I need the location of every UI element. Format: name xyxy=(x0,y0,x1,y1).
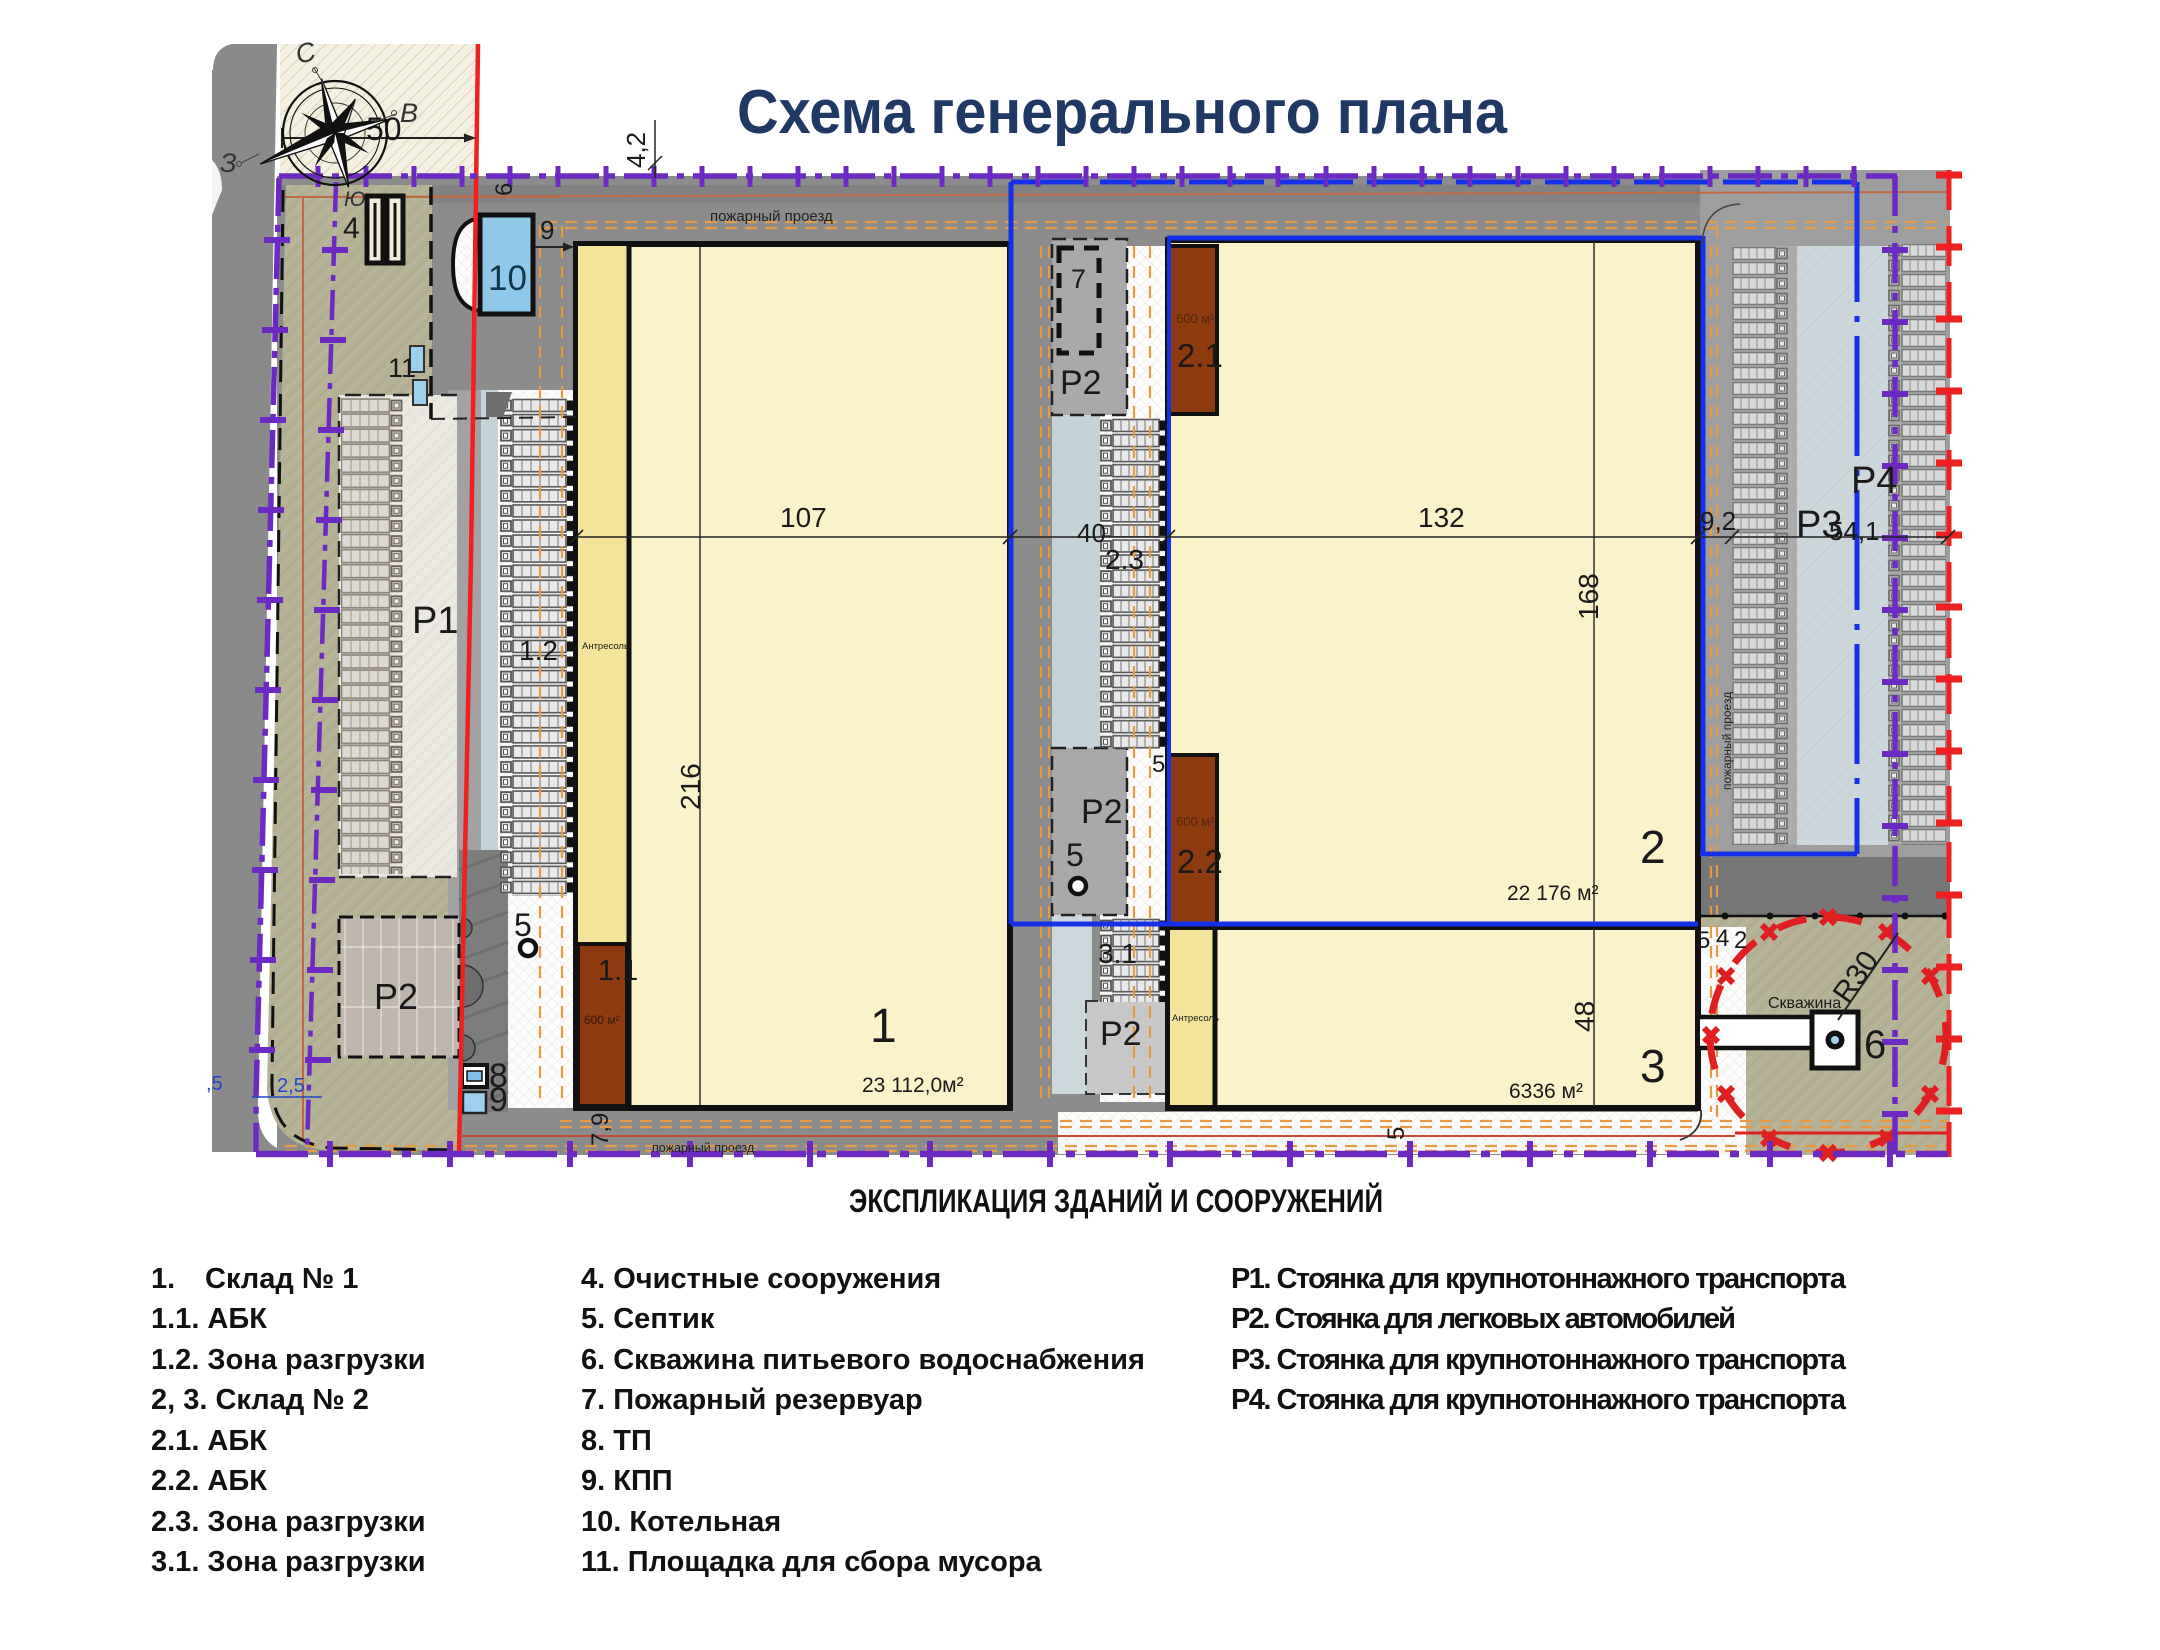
svg-text:1: 1 xyxy=(870,1000,897,1053)
svg-text:5: 5 xyxy=(1152,751,1165,778)
svg-text:,5: ,5 xyxy=(206,1073,223,1095)
svg-text:1.1. АБК: 1.1. АБК xyxy=(151,1303,267,1335)
svg-text:Ю: Ю xyxy=(344,188,365,211)
svg-text:2.2. АБК: 2.2. АБК xyxy=(151,1465,267,1497)
svg-text:P2: P2 xyxy=(1100,1015,1142,1053)
svg-text:168: 168 xyxy=(1573,573,1604,620)
svg-text:11: 11 xyxy=(388,353,416,383)
svg-text:пожарный проезд: пожарный проезд xyxy=(1720,692,1734,790)
svg-text:P2: P2 xyxy=(374,976,418,1017)
svg-text:9: 9 xyxy=(489,1081,508,1119)
svg-text:2.3: 2.3 xyxy=(1105,544,1144,575)
svg-text:P1: P1 xyxy=(412,600,458,642)
svg-text:7. Пожарный резервуар: 7. Пожарный резервуар xyxy=(581,1384,923,1416)
svg-text:48: 48 xyxy=(1569,1001,1600,1032)
svg-text:Р1. Стоянка для крупнотоннажно: Р1. Стоянка для крупнотоннажного транспо… xyxy=(1231,1263,1847,1295)
svg-text:11. Площадка для сбора мусора: 11. Площадка для сбора мусора xyxy=(581,1546,1043,1578)
svg-text:Антресоль: Антресоль xyxy=(582,641,629,652)
svg-text:пожарный проезд: пожарный проезд xyxy=(710,208,833,225)
svg-text:P4: P4 xyxy=(1851,460,1897,502)
svg-text:2, 3. Склад № 2: 2, 3. Склад № 2 xyxy=(151,1384,369,1416)
svg-text:1.2. Зона разгрузки: 1.2. Зона разгрузки xyxy=(151,1344,426,1376)
svg-text:3.1: 3.1 xyxy=(1098,938,1137,969)
svg-text:9: 9 xyxy=(540,215,554,245)
svg-text:9,2: 9,2 xyxy=(1700,506,1736,536)
svg-text:P2: P2 xyxy=(1060,364,1102,402)
svg-text:6: 6 xyxy=(491,183,518,196)
svg-text:3: 3 xyxy=(1640,1040,1666,1092)
svg-text:600 м²: 600 м² xyxy=(584,1013,620,1027)
svg-text:2.2: 2.2 xyxy=(1177,843,1223,880)
svg-text:40: 40 xyxy=(1077,518,1106,548)
svg-text:2.1. АБК: 2.1. АБК xyxy=(151,1425,267,1457)
svg-text:Р4. Стоянка для крупнотоннажно: Р4. Стоянка для крупнотоннажного транспо… xyxy=(1231,1384,1847,1416)
svg-text:5. Септик: 5. Септик xyxy=(581,1303,715,1335)
svg-text:1.1: 1.1 xyxy=(598,955,638,987)
svg-text:107: 107 xyxy=(780,502,827,533)
svg-text:10. Котельная: 10. Котельная xyxy=(581,1506,781,1538)
svg-text:2: 2 xyxy=(1734,927,1747,954)
svg-text:Склад № 1: Склад № 1 xyxy=(205,1263,358,1295)
svg-text:22 176 м²: 22 176 м² xyxy=(1507,882,1599,905)
svg-text:2.1: 2.1 xyxy=(1177,337,1223,374)
svg-text:5: 5 xyxy=(514,907,532,943)
svg-text:пожарный проезд: пожарный проезд xyxy=(652,1141,755,1155)
svg-text:Скважина: Скважина xyxy=(1768,995,1841,1012)
svg-text:600 м²: 600 м² xyxy=(1176,311,1215,326)
svg-text:600 м²: 600 м² xyxy=(1176,814,1215,829)
svg-text:P3: P3 xyxy=(1796,504,1842,546)
svg-text:2.3. Зона разгрузки: 2.3. Зона разгрузки xyxy=(151,1506,426,1538)
svg-text:7: 7 xyxy=(1071,264,1086,294)
svg-text:4: 4 xyxy=(343,212,360,245)
svg-text:8. ТП: 8. ТП xyxy=(581,1425,652,1457)
svg-text:6336 м²: 6336 м² xyxy=(1509,1080,1583,1103)
svg-text:Р3. Стоянка для крупнотоннажно: Р3. Стоянка для крупнотоннажного транспо… xyxy=(1231,1344,1847,1376)
svg-text:4: 4 xyxy=(1716,925,1729,952)
svg-text:ЭКСПЛИКАЦИЯ ЗДАНИЙ И СООРУЖЕНИ: ЭКСПЛИКАЦИЯ ЗДАНИЙ И СООРУЖЕНИЙ xyxy=(849,1183,1383,1219)
svg-text:216: 216 xyxy=(675,763,706,810)
svg-text:7,9: 7,9 xyxy=(587,1113,614,1146)
svg-text:5: 5 xyxy=(1066,837,1084,873)
svg-text:4. Очистные сооружения: 4. Очистные сооружения xyxy=(581,1263,941,1295)
svg-text:9. КПП: 9. КПП xyxy=(581,1465,673,1497)
svg-text:1.: 1. xyxy=(151,1263,175,1295)
svg-text:2: 2 xyxy=(1640,821,1666,873)
svg-text:23 112,0м²: 23 112,0м² xyxy=(862,1074,964,1097)
svg-text:В: В xyxy=(400,98,418,128)
svg-text:Схема генерального плана: Схема генерального плана xyxy=(737,78,1507,147)
svg-text:6. Скважина питьевого водоснаб: 6. Скважина питьевого водоснабжения xyxy=(581,1344,1145,1376)
svg-text:132: 132 xyxy=(1418,502,1465,533)
svg-text:1.2: 1.2 xyxy=(519,635,558,666)
svg-text:Р2. Стоянка для легковых автом: Р2. Стоянка для легковых автомобилей xyxy=(1231,1303,1736,1335)
svg-text:Антресоль: Антресоль xyxy=(1172,1013,1219,1024)
svg-text:10: 10 xyxy=(488,259,527,298)
svg-text:З: З xyxy=(220,148,237,178)
svg-text:2,5: 2,5 xyxy=(277,1075,305,1097)
svg-text:5: 5 xyxy=(1383,1127,1410,1140)
svg-text:P2: P2 xyxy=(1081,793,1123,831)
svg-text:3.1. Зона разгрузки: 3.1. Зона разгрузки xyxy=(151,1546,426,1578)
svg-text:5: 5 xyxy=(1697,927,1710,954)
svg-text:6: 6 xyxy=(1864,1023,1886,1067)
svg-text:4,2: 4,2 xyxy=(621,132,651,168)
